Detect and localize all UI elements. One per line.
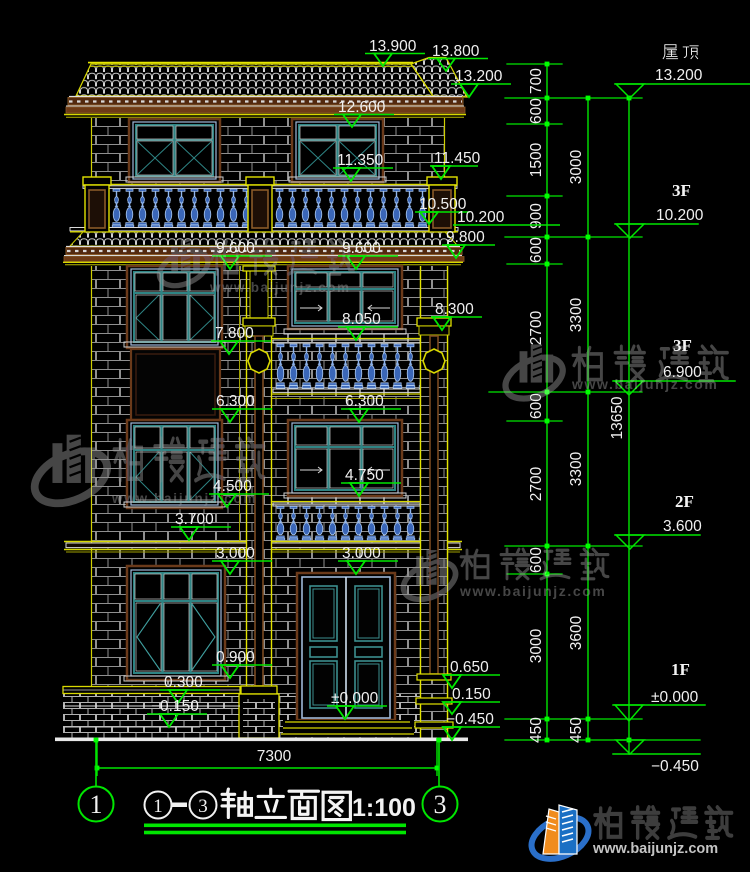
svg-text:0.900: 0.900: [216, 649, 255, 666]
svg-text:11.350: 11.350: [337, 152, 384, 169]
svg-text:0.150: 0.150: [452, 686, 491, 703]
svg-text:www.baijunjz.com: www.baijunjz.com: [592, 841, 718, 857]
svg-text:www.baijunjz.com: www.baijunjz.com: [209, 280, 351, 295]
svg-text:−0.450: −0.450: [446, 711, 494, 728]
svg-text:10.200: 10.200: [457, 209, 505, 226]
svg-text:3000: 3000: [568, 149, 585, 184]
svg-text:11.450: 11.450: [434, 150, 481, 167]
svg-text:450: 450: [568, 717, 585, 743]
svg-text:13650: 13650: [609, 396, 626, 439]
svg-text:600: 600: [528, 98, 545, 124]
svg-text:±0.000: ±0.000: [331, 690, 379, 707]
svg-text:8.300: 8.300: [435, 301, 474, 318]
svg-text:www.baijunjz.com: www.baijunjz.com: [111, 491, 257, 506]
svg-text:www.baijunjz.com: www.baijunjz.com: [459, 583, 606, 599]
svg-text:13.800: 13.800: [432, 43, 480, 60]
svg-text:3: 3: [434, 790, 447, 819]
svg-text:13.200: 13.200: [455, 68, 503, 85]
svg-text:3600: 3600: [568, 615, 585, 650]
svg-text:1: 1: [153, 796, 163, 817]
svg-text:3000: 3000: [528, 628, 545, 663]
svg-text:2F: 2F: [675, 492, 694, 511]
svg-text:www.baijunjz.com: www.baijunjz.com: [571, 376, 718, 392]
svg-text:0.300: 0.300: [164, 674, 203, 691]
svg-text:−0.450: −0.450: [651, 758, 699, 775]
svg-text:1: 1: [90, 790, 103, 819]
svg-text:3.700: 3.700: [175, 511, 214, 528]
svg-text:2700: 2700: [528, 466, 545, 501]
svg-text:3300: 3300: [568, 297, 585, 332]
svg-text:10.200: 10.200: [656, 207, 704, 224]
svg-text:3.600: 3.600: [663, 518, 702, 535]
svg-text:6.300: 6.300: [216, 393, 255, 410]
svg-text:600: 600: [528, 237, 545, 263]
svg-text:1:100: 1:100: [352, 794, 416, 822]
svg-text:3.000: 3.000: [342, 545, 381, 562]
svg-text:±0.000: ±0.000: [651, 689, 699, 706]
svg-text:3.000: 3.000: [216, 545, 255, 562]
svg-text:2700: 2700: [528, 310, 545, 345]
svg-text:13.200: 13.200: [655, 67, 703, 84]
svg-text:6.300: 6.300: [345, 393, 384, 410]
svg-text:0.650: 0.650: [450, 659, 489, 676]
svg-text:3: 3: [198, 796, 208, 817]
svg-text:12.600: 12.600: [338, 99, 386, 116]
svg-text:4.750: 4.750: [345, 467, 384, 484]
svg-text:450: 450: [528, 717, 545, 743]
svg-text:1500: 1500: [528, 142, 545, 177]
svg-text:3300: 3300: [568, 451, 585, 486]
svg-text:700: 700: [528, 68, 545, 94]
svg-text:1F: 1F: [671, 660, 690, 679]
svg-text:8.050: 8.050: [342, 311, 381, 328]
svg-text:7300: 7300: [257, 748, 292, 765]
svg-text:3F: 3F: [672, 181, 691, 200]
svg-text:−0.150: −0.150: [151, 698, 199, 715]
svg-text:9.800: 9.800: [446, 229, 485, 246]
svg-text:7.800: 7.800: [215, 325, 254, 342]
svg-text:13.900: 13.900: [369, 38, 417, 55]
svg-text:600: 600: [528, 547, 545, 573]
